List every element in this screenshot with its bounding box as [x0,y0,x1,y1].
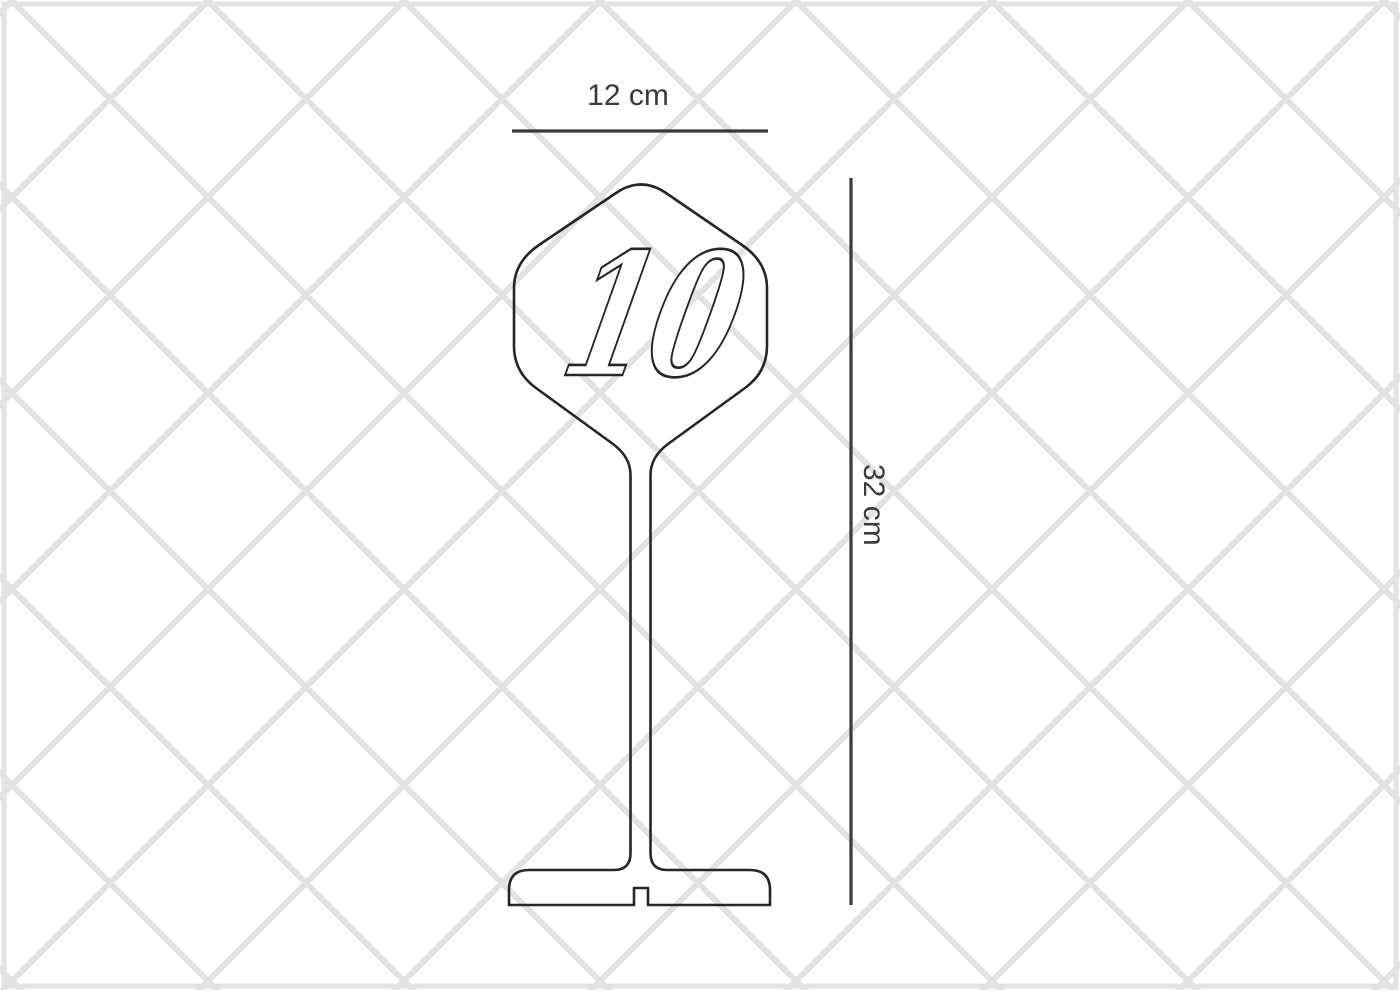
drawing-page: 10 12 cm 32 cm [0,0,1400,990]
height-dimension-label: 32 cm [857,464,890,546]
dimension-drawing-canvas: 10 12 cm 32 cm [0,0,1400,990]
width-dimension-label: 12 cm [587,79,669,112]
diamond-grid-background [0,0,1400,990]
